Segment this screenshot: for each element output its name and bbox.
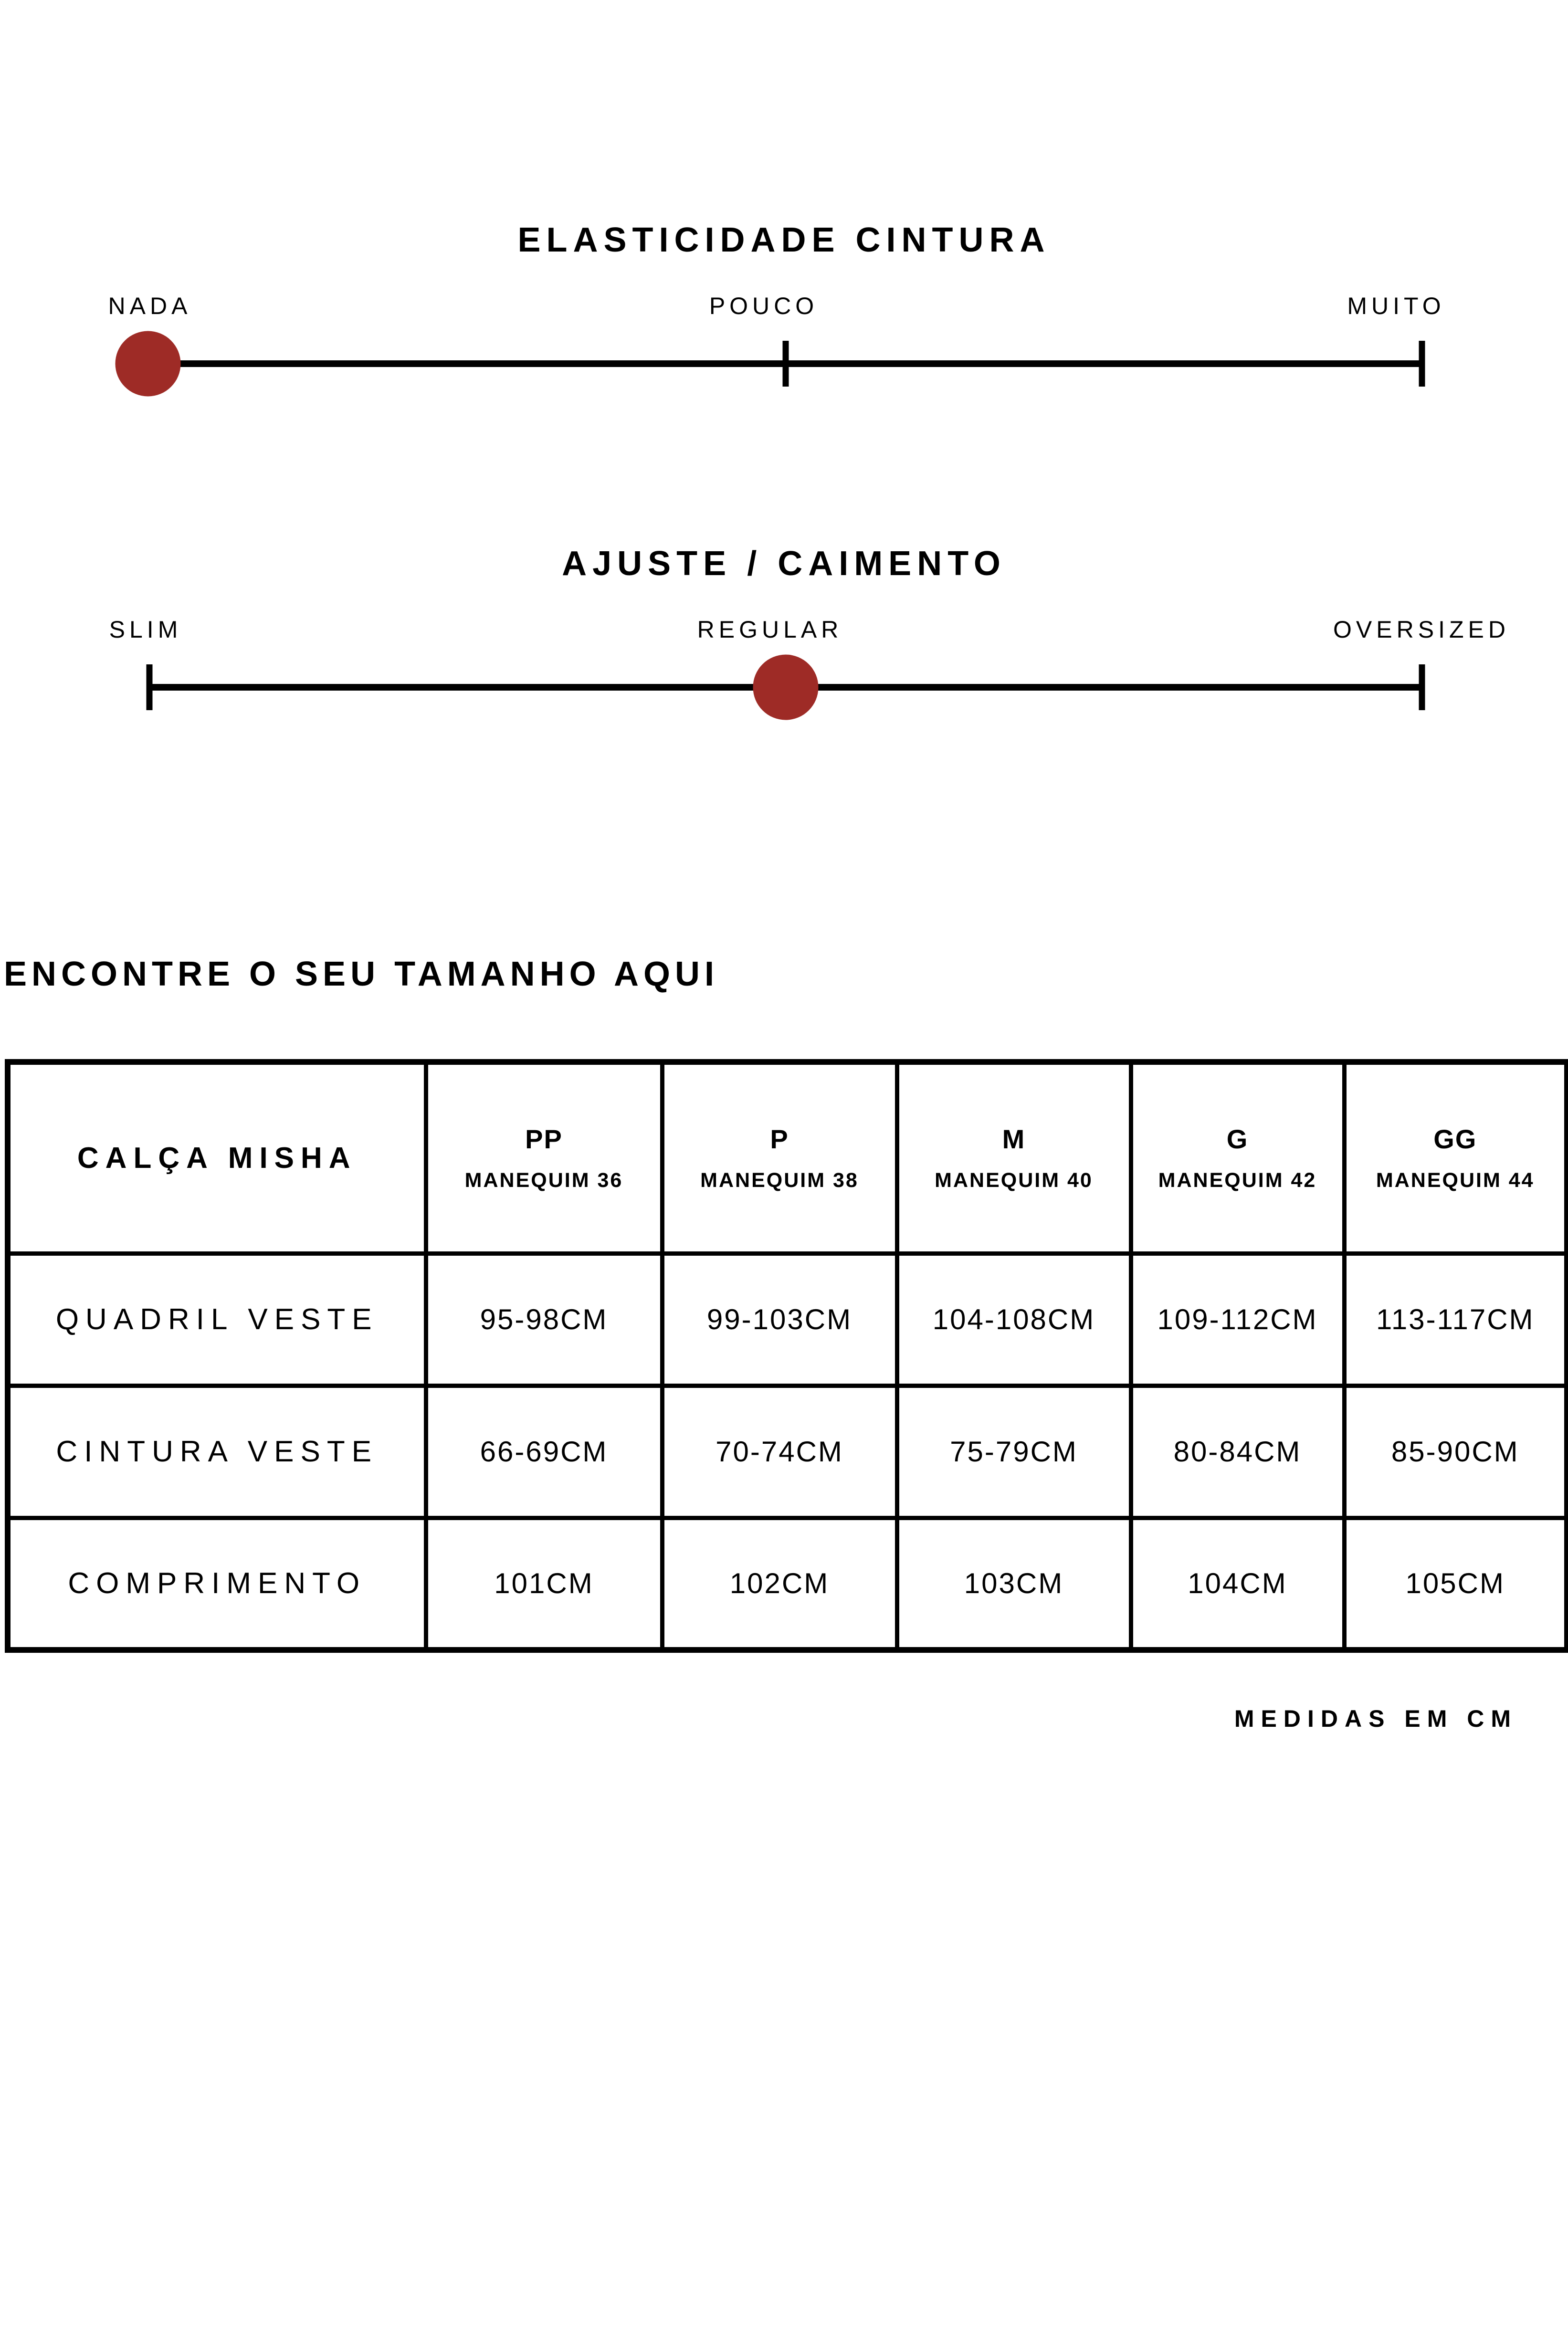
value-cell: 101CM <box>426 1518 662 1650</box>
slider-label-max-oversized: OVERSIZED <box>1333 616 1510 643</box>
row-label-cell: QUADRIL VESTE <box>8 1253 426 1386</box>
selected-marker-dot-regular <box>753 655 819 720</box>
slider-label-max-muito: MUITO <box>1347 292 1445 320</box>
mannequin-label: MANEQUIM 42 <box>1133 1169 1342 1192</box>
value-cell: 80-84CM <box>1131 1386 1344 1518</box>
measures-footnote: MEDIDAS EM CM <box>1234 1705 1517 1732</box>
slider-label-mid-pouco: POUCO <box>709 292 818 320</box>
mannequin-label: MANEQUIM 38 <box>664 1169 895 1192</box>
value-cell: 109-112CM <box>1131 1253 1344 1386</box>
value-cell: 105CM <box>1344 1518 1567 1650</box>
product-name: CALÇA MISHA <box>11 1141 424 1175</box>
value-cell: 102CM <box>662 1518 897 1650</box>
row-label: QUADRIL VESTE <box>56 1303 379 1336</box>
selected-marker-dot-nada <box>116 331 181 397</box>
size-letter: G <box>1133 1123 1342 1155</box>
value-cell: 104CM <box>1131 1518 1344 1650</box>
size-header-cell-gg: GG MANEQUIM 44 <box>1344 1062 1567 1253</box>
value-cell: 95-98CM <box>426 1253 662 1386</box>
value-cell: 99-103CM <box>662 1253 897 1386</box>
size-letter: M <box>899 1123 1129 1155</box>
value-cell: 104-108CM <box>897 1253 1131 1386</box>
size-guide-sheet: ELASTICIDADE CINTURA NADA POUCO MUITO AJ… <box>0 0 1568 2352</box>
value-cell: 103CM <box>897 1518 1131 1650</box>
value-cell: 70-74CM <box>662 1386 897 1518</box>
size-header-cell-p: P MANEQUIM 38 <box>662 1062 897 1253</box>
size-letter: PP <box>428 1123 660 1155</box>
value-cell: 75-79CM <box>897 1386 1131 1518</box>
slider-start-tick <box>147 664 153 710</box>
product-name-cell: CALÇA MISHA <box>8 1062 426 1253</box>
table-header-row: CALÇA MISHA PP MANEQUIM 36 P MANEQUIM 38… <box>8 1062 1567 1253</box>
row-label-cell: CINTURA VESTE <box>8 1386 426 1518</box>
slider-title-fit: AJUSTE / CAIMENTO <box>0 544 1568 583</box>
row-label: COMPRIMENTO <box>68 1567 366 1600</box>
slider-label-mid-regular: REGULAR <box>697 616 843 643</box>
size-letter: GG <box>1347 1123 1565 1155</box>
value-cell: 113-117CM <box>1344 1253 1567 1386</box>
slider-mid-tick <box>783 341 789 387</box>
value-cell: 66-69CM <box>426 1386 662 1518</box>
size-header-cell-g: G MANEQUIM 42 <box>1131 1062 1344 1253</box>
slider-title-elasticity: ELASTICIDADE CINTURA <box>0 220 1568 260</box>
size-letter: P <box>664 1123 895 1155</box>
size-finder-heading: ENCONTRE O SEU TAMANHO AQUI <box>4 955 719 994</box>
size-table: CALÇA MISHA PP MANEQUIM 36 P MANEQUIM 38… <box>5 1059 1568 1653</box>
table-row-comprimento: COMPRIMENTO 101CM 102CM 103CM 104CM 105C… <box>8 1518 1567 1650</box>
slider-end-tick <box>1419 664 1425 710</box>
table-row-cintura: CINTURA VESTE 66-69CM 70-74CM 75-79CM 80… <box>8 1386 1567 1518</box>
slider-label-min-slim: SLIM <box>109 616 182 643</box>
slider-label-min-nada: NADA <box>108 292 192 320</box>
mannequin-label: MANEQUIM 40 <box>899 1169 1129 1192</box>
size-header-cell-m: M MANEQUIM 40 <box>897 1062 1131 1253</box>
row-label: CINTURA VESTE <box>56 1435 378 1468</box>
value-cell: 85-90CM <box>1344 1386 1567 1518</box>
size-header-cell-pp: PP MANEQUIM 36 <box>426 1062 662 1253</box>
row-label-cell: COMPRIMENTO <box>8 1518 426 1650</box>
mannequin-label: MANEQUIM 44 <box>1347 1169 1565 1192</box>
mannequin-label: MANEQUIM 36 <box>428 1169 660 1192</box>
slider-end-tick <box>1419 341 1425 387</box>
table-row-quadril: QUADRIL VESTE 95-98CM 99-103CM 104-108CM… <box>8 1253 1567 1386</box>
